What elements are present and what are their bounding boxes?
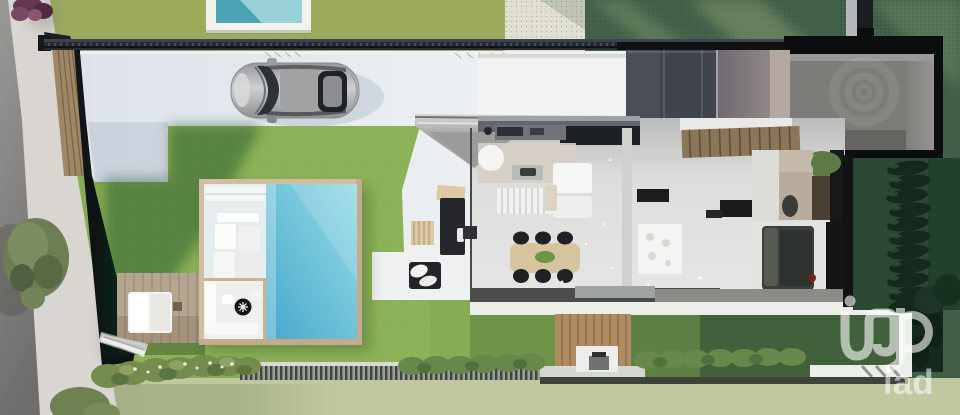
svg-text:iad: iad	[883, 363, 934, 402]
